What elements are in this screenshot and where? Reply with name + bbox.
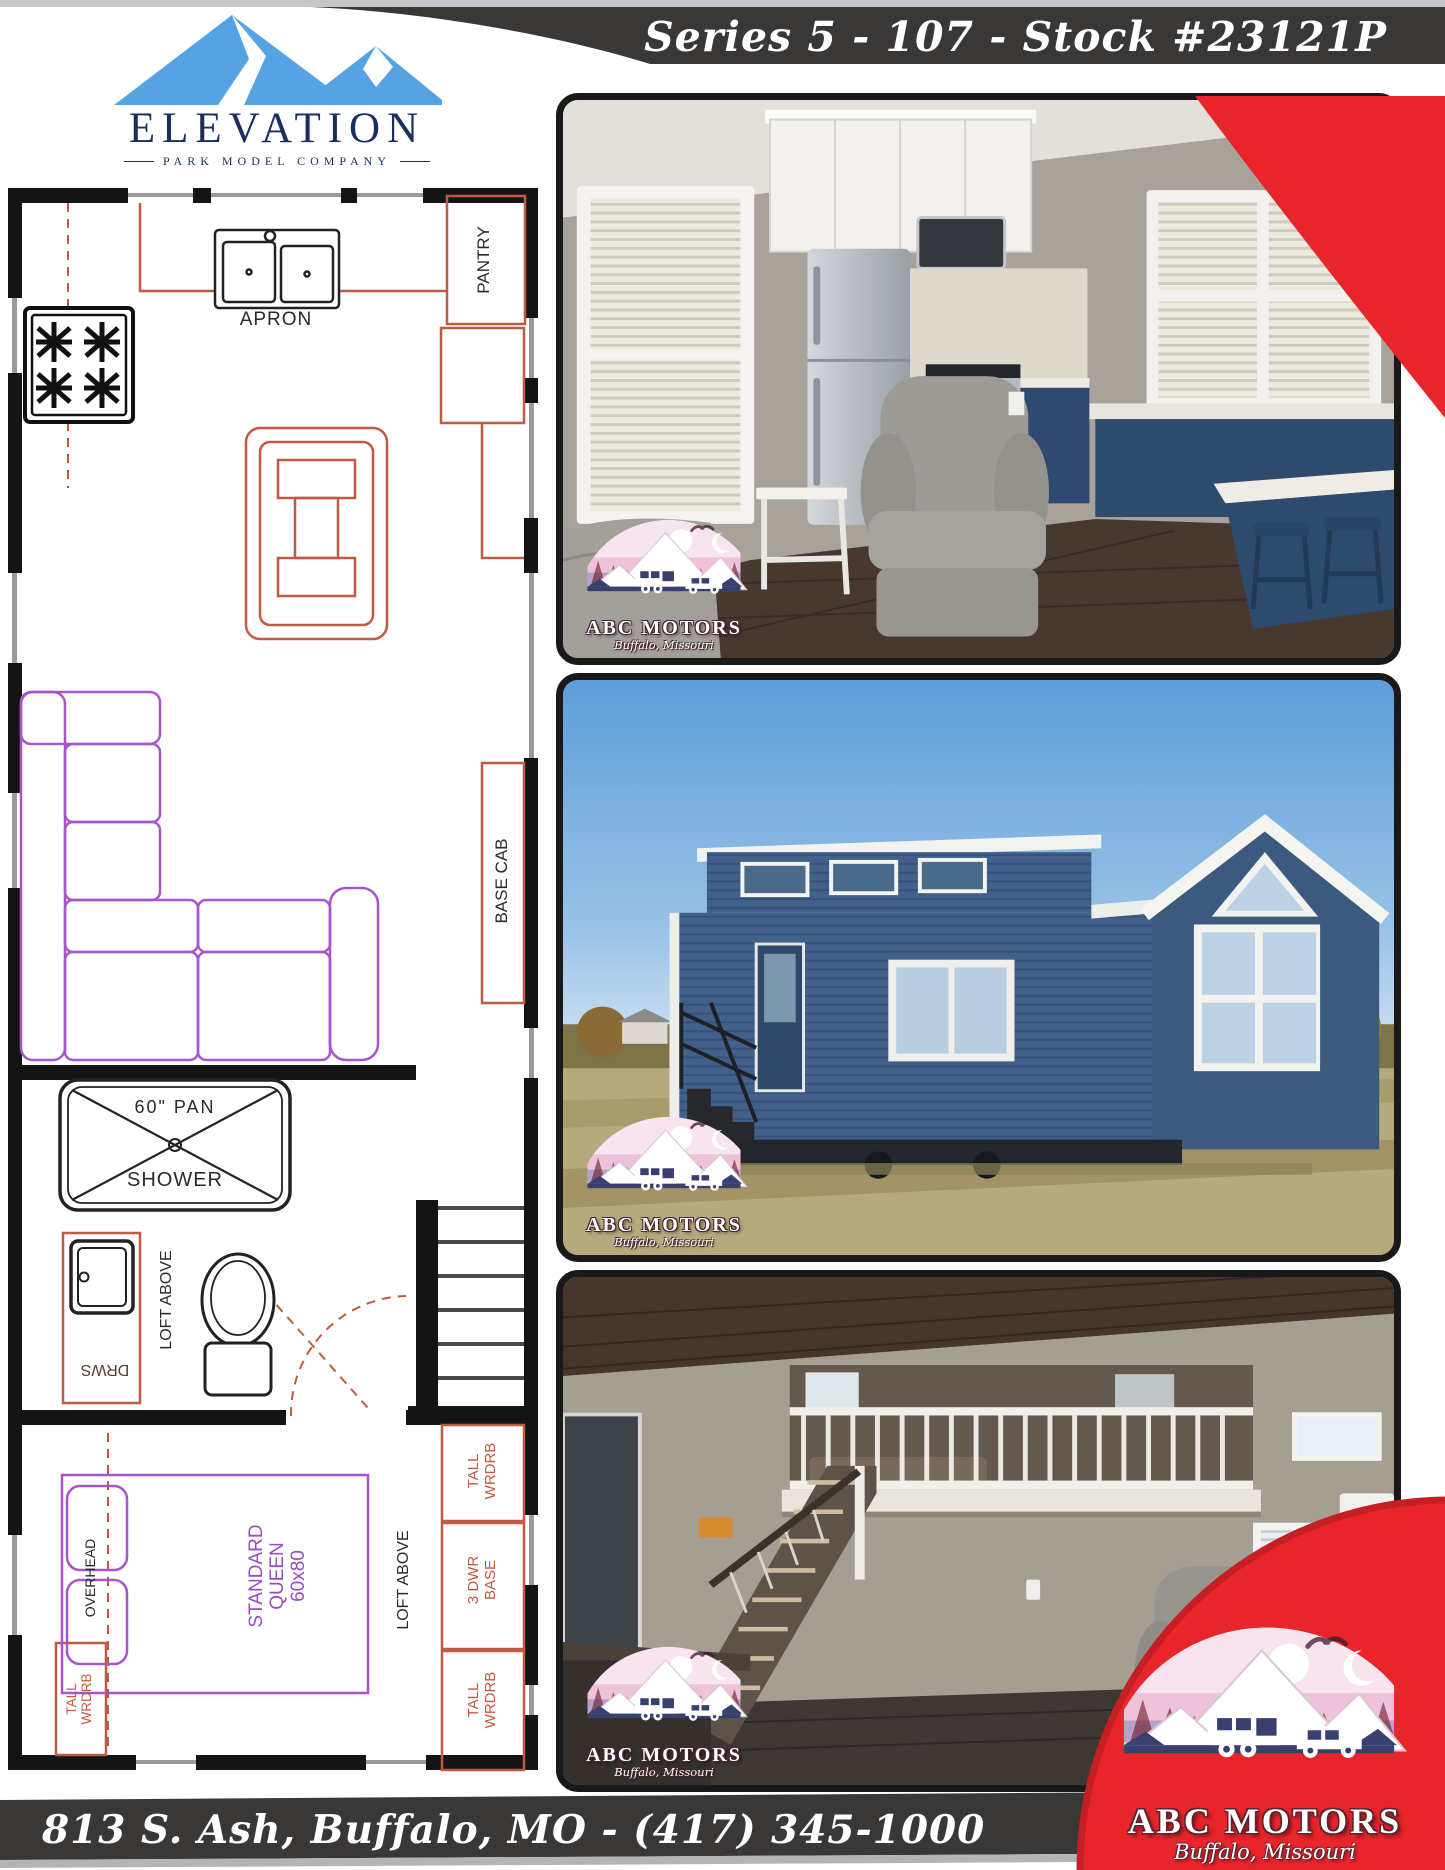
watermark-dealer-name: ABC MOTORS [579,617,749,640]
watermark-dealer-name: ABC MOTORS [579,1744,749,1767]
dealer-location: Buffalo, Missouri [1109,1840,1421,1864]
dealer-address-text: 813 S. Ash, Buffalo, MO - (417) 345-1000 [42,1804,985,1856]
red-swoosh-top-right [1180,74,1445,424]
range [25,308,133,422]
mountain-icon [112,10,442,106]
washer [71,1241,133,1313]
photo3-watermark: ABC MOTORS Buffalo, Missouri [579,1637,749,1779]
photo-exterior: ABC MOTORS Buffalo, Missouri [556,673,1401,1262]
wrdrb2-line2: WRDRB [483,1655,500,1745]
microwave [918,217,1005,268]
kitchen-sink [215,230,339,308]
label-shower-pan: 60" PAN [115,1098,235,1118]
sofa [21,692,378,1060]
watermark-dealer-location: Buffalo, Missouri [579,638,749,652]
wrdrbL-line2: WRDRB [80,1657,95,1741]
watermark-dealer-name: ABC MOTORS [579,1214,749,1237]
label-tall-wrdrb-1: TALL WRDRB [466,1426,500,1516]
floor-plan: APRON PANTRY BASE CAB 60" PAN SHOWER LOF… [8,188,538,1788]
abc-motors-logo: ABC MOTORS Buffalo, Missouri [1109,1610,1421,1864]
distant-house [622,1022,667,1044]
bed-line3: 60x80 [289,1516,310,1636]
label-3dwr-base: 3 DWR BASE [466,1535,500,1625]
elevation-logo: ELEVATION PARK MODEL COMPANY [112,10,442,169]
entry-door-glass [563,1415,640,1653]
photo2-watermark: ABC MOTORS Buffalo, Missouri [579,1107,749,1249]
flyer-page: Series 5 - 107 - Stock #23121P ELEVATION… [0,0,1445,1870]
park-model-home [669,823,1385,1179]
label-shower: SHOWER [110,1169,240,1191]
toilet [202,1254,274,1395]
label-base-cab: BASE CAB [493,816,513,946]
bed-line2: QUEEN [268,1516,289,1636]
label-loft-above-bath: LOFT ABOVE [158,1235,178,1365]
dealer-name: ABC MOTORS [1109,1800,1421,1842]
watermark-dealer-location: Buffalo, Missouri [579,1765,749,1779]
dashed-lines [68,203,406,1748]
label-tall-wrdrb-2: TALL WRDRB [466,1655,500,1745]
label-standard-queen: STANDARD QUEEN 60x80 [247,1516,313,1636]
dresser-line1: 3 DWR [466,1535,483,1625]
wrdrb1-line1: TALL [466,1426,483,1516]
bed-line1: STANDARD [247,1516,268,1636]
label-apron: APRON [221,310,331,331]
brand-tagline: PARK MODEL COMPANY [112,154,442,169]
photo1-watermark: ABC MOTORS Buffalo, Missouri [579,510,749,652]
recliner [861,376,1049,636]
tagline-rule-left [124,161,154,162]
dresser-line2: BASE [483,1535,500,1625]
stairs [438,1208,524,1378]
watermark-dealer-location: Buffalo, Missouri [579,1235,749,1249]
stock-banner-text: Series 5 - 107 - Stock #23121P [644,11,1387,63]
label-loft-above-bed: LOFT ABOVE [395,1515,415,1645]
brand-name: ELEVATION [112,104,442,153]
tagline-rule-right [400,161,430,162]
label-tall-wrdrb-left: TALL WRDRB [65,1657,97,1741]
brand-tagline-text: PARK MODEL COMPANY [163,154,391,169]
abc-badge-icon [1109,1610,1409,1810]
wrdrbL-line1: TALL [65,1657,80,1741]
wrdrb1-line2: WRDRB [483,1426,500,1516]
label-pantry: PANTRY [475,205,495,315]
label-overhead: OVERHEAD [83,1523,101,1633]
label-drws: DRWS [70,1358,140,1378]
wrdrb2-line1: TALL [466,1655,483,1745]
